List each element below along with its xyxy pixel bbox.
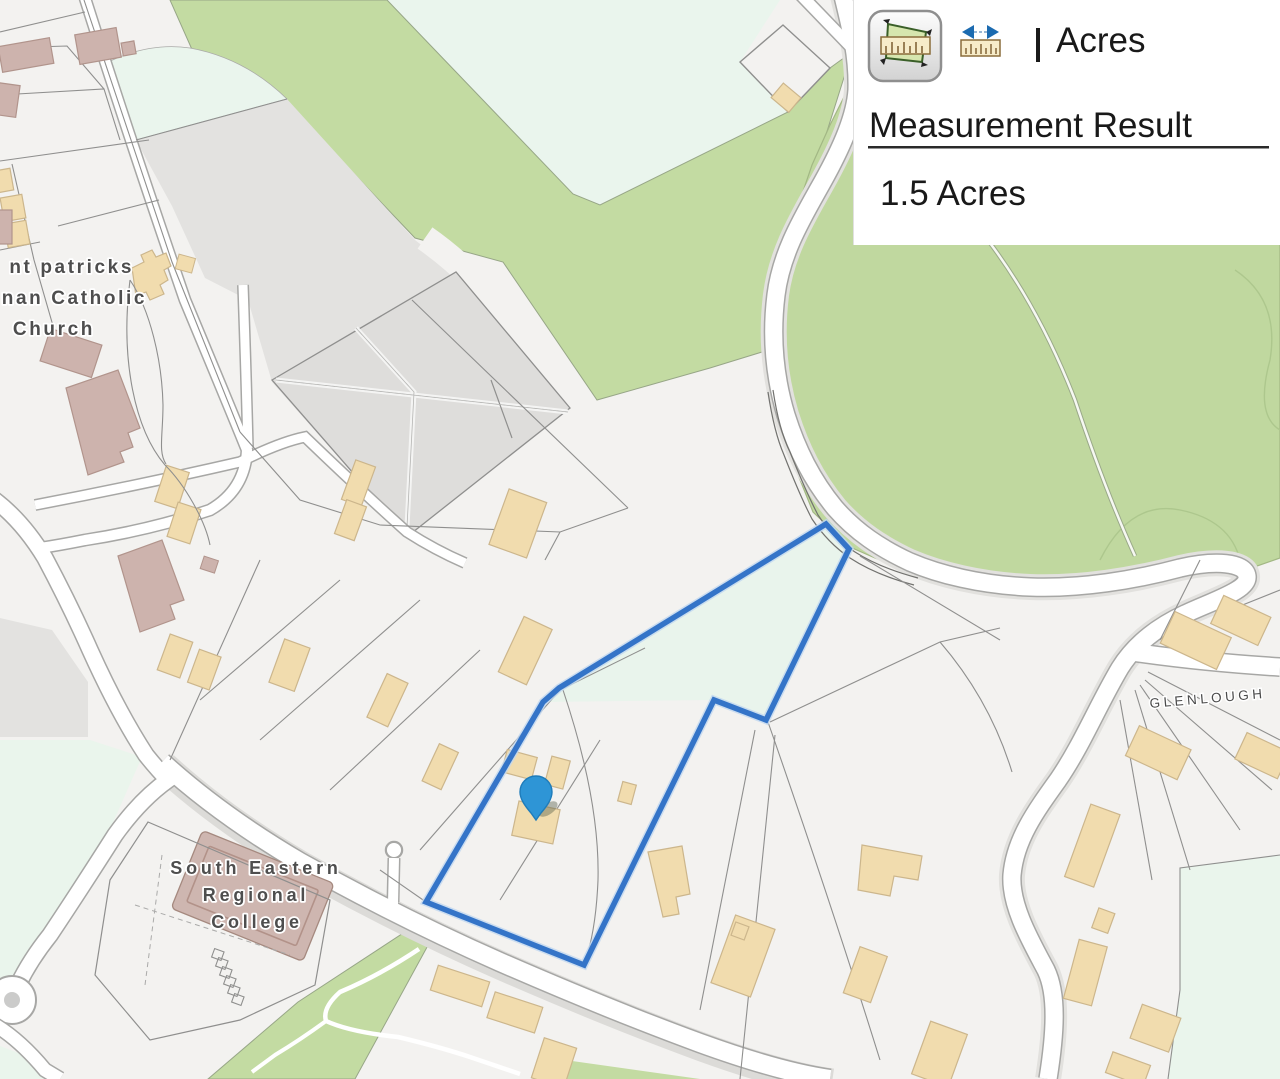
svg-text:Regional: Regional [203, 885, 309, 905]
svg-text:Acres: Acres [1056, 21, 1145, 60]
svg-text:Measurement Result: Measurement Result [869, 106, 1192, 145]
svg-text:College: College [211, 912, 303, 932]
svg-text:1.5 Acres: 1.5 Acres [880, 174, 1026, 213]
svg-text:nt patricks: nt patricks [9, 257, 134, 278]
svg-text:South Eastern: South Eastern [170, 858, 341, 878]
svg-text:nan Catholic: nan Catholic [2, 288, 147, 309]
svg-text:Church: Church [13, 319, 95, 340]
